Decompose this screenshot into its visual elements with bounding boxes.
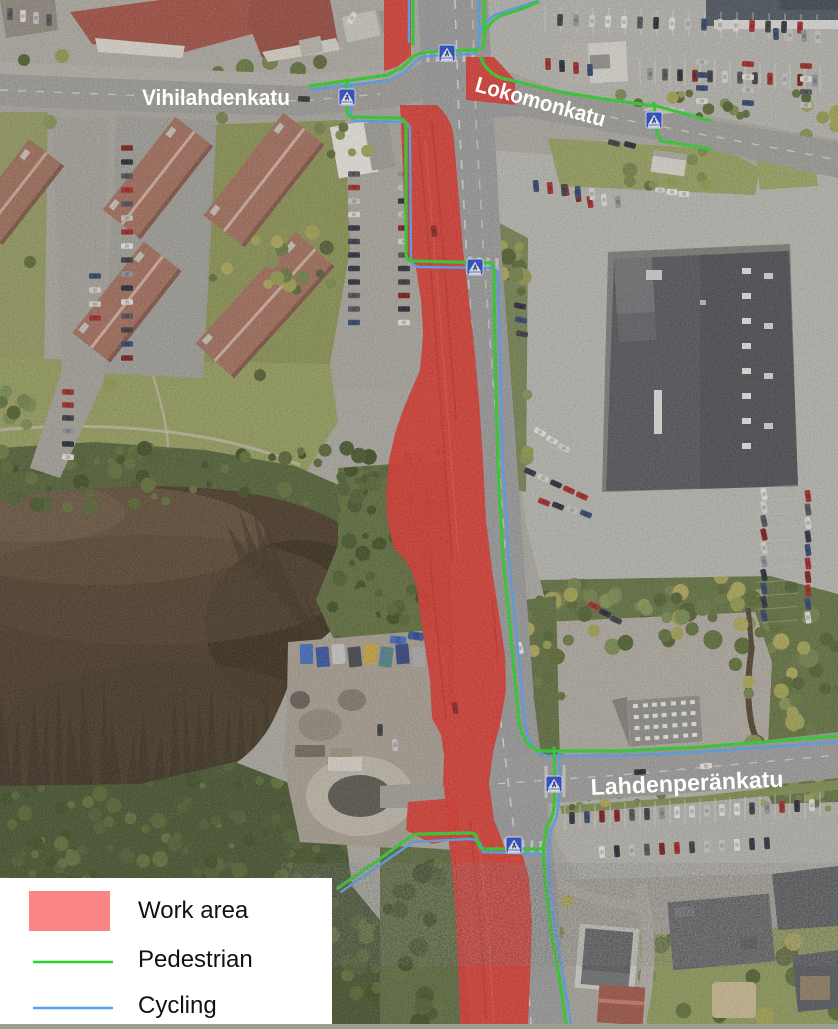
svg-text:Vihilahdenkatu: Vihilahdenkatu bbox=[142, 85, 290, 110]
svg-text:Pedestrian: Pedestrian bbox=[138, 946, 253, 973]
svg-text:Work area: Work area bbox=[138, 897, 249, 924]
svg-text:Cycling: Cycling bbox=[138, 992, 217, 1019]
